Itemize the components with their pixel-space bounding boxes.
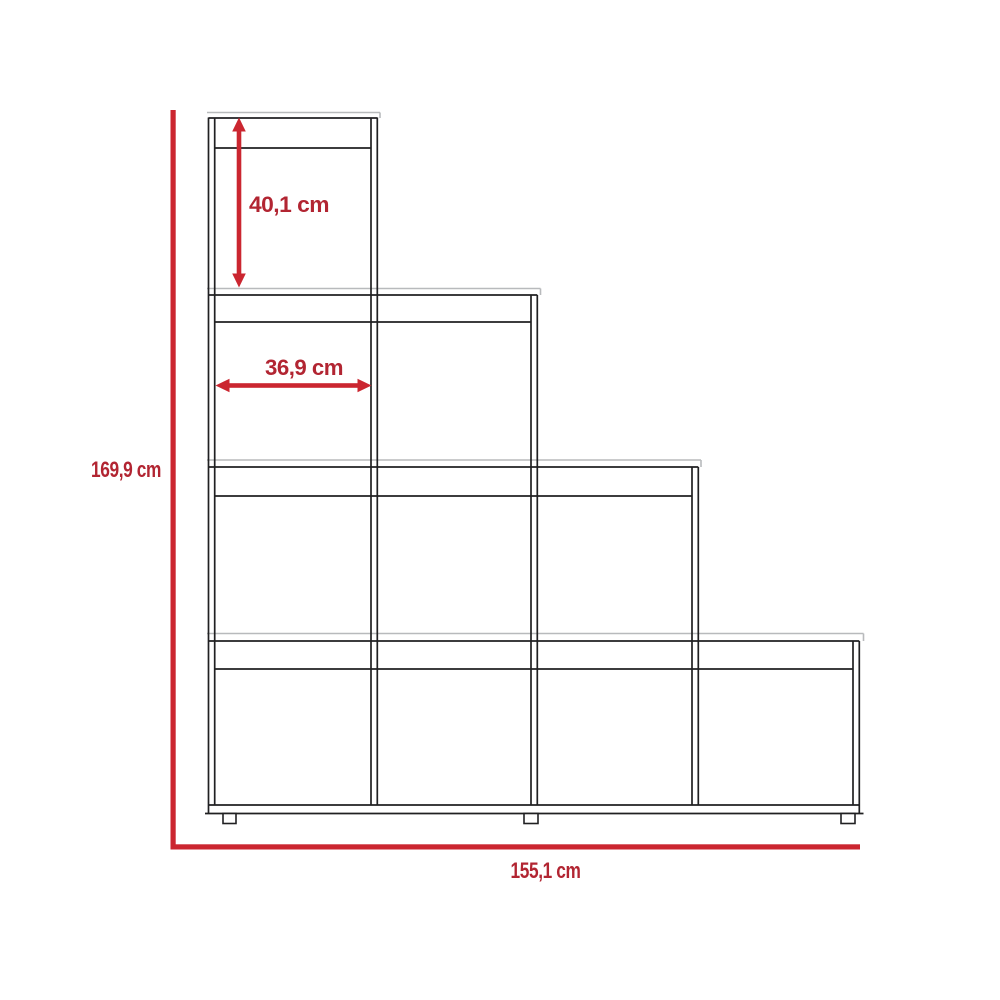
furniture-dimension-diagram: 40,1 cm 36,9 cm 169,9 cm 155,1 cm bbox=[0, 0, 1000, 1000]
cube-width-arrow-head-right bbox=[358, 379, 372, 393]
cube-width-arrow-shaft bbox=[227, 383, 359, 388]
furniture-outline bbox=[205, 118, 864, 814]
height-axis-line bbox=[171, 110, 176, 850]
cube-height-arrow-head-top bbox=[232, 118, 246, 132]
foot-right bbox=[841, 814, 855, 824]
cube-width-arrow bbox=[216, 379, 372, 393]
cube-height-arrow bbox=[232, 118, 246, 288]
foot-left bbox=[223, 814, 236, 824]
cube-height-arrow-head-bottom bbox=[232, 274, 246, 288]
dimension-graphics bbox=[171, 110, 861, 850]
label-cube-inner-width: 36,9 cm bbox=[265, 355, 343, 380]
width-axis-line bbox=[171, 844, 861, 849]
label-total-height: 169,9 cm bbox=[91, 457, 161, 482]
feet bbox=[223, 814, 855, 824]
label-top-cube-height: 40,1 cm bbox=[249, 192, 329, 217]
cube-height-arrow-shaft bbox=[237, 128, 242, 275]
foot-center bbox=[524, 814, 538, 824]
diagram-canvas: 40,1 cm 36,9 cm 169,9 cm 155,1 cm bbox=[0, 0, 1000, 1000]
cube-width-arrow-head-left bbox=[216, 379, 230, 393]
label-total-width: 155,1 cm bbox=[511, 858, 581, 883]
